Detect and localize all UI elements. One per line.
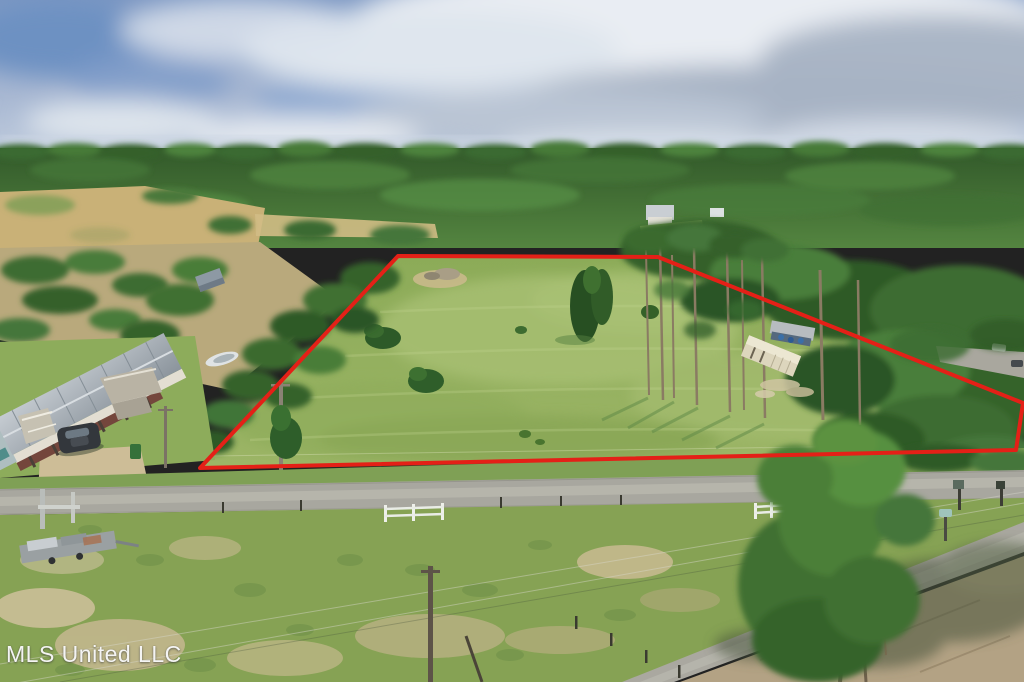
aerial-photo: MLS United LLC: [0, 0, 1024, 682]
parked-car-dark: [1011, 360, 1023, 367]
green-bin: [130, 444, 141, 459]
photo-canvas: [0, 0, 1024, 682]
